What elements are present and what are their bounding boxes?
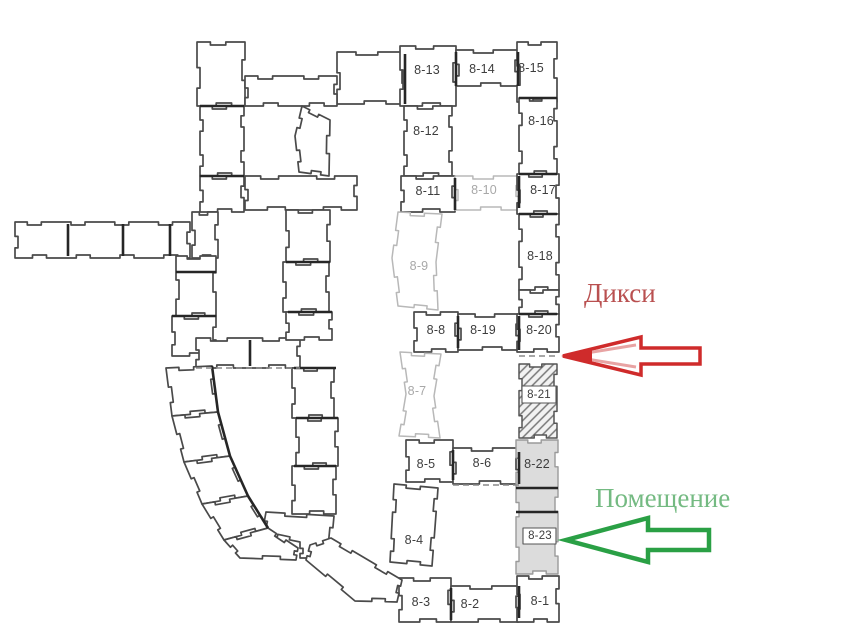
room-label-8-2: 8-2 <box>461 597 480 611</box>
plan-wall-shape <box>166 366 218 416</box>
plan-wall-shape <box>295 106 330 176</box>
room-label-8-21: 8-21 <box>527 389 551 401</box>
room-label-8-19: 8-19 <box>470 323 496 337</box>
room-label-8-14: 8-14 <box>469 62 495 76</box>
room-label-8-10: 8-10 <box>471 183 497 197</box>
room-label-8-3: 8-3 <box>412 595 431 609</box>
floor-plan-drawing: Дикси Помещение <box>0 0 847 633</box>
red-arrow-tip <box>561 349 592 364</box>
room-label-8-9: 8-9 <box>410 259 429 273</box>
plan-wall-shape <box>245 76 337 106</box>
green-arrow-outline <box>566 518 709 562</box>
room-label-8-16: 8-16 <box>528 114 554 128</box>
floor-plan-canvas: Дикси Помещение 8-13 8-14 8-15 8-12 8-16… <box>0 0 847 633</box>
room-label-8-6: 8-6 <box>473 456 492 470</box>
plan-wall-shape <box>15 222 190 258</box>
plan-wall-shape <box>292 368 334 418</box>
plan-wall-shape <box>337 52 405 104</box>
plan-wall-shape <box>286 312 332 340</box>
room-label-8-17: 8-17 <box>530 183 556 197</box>
room-label-8-7: 8-7 <box>408 384 427 398</box>
room-label-8-18: 8-18 <box>527 249 553 263</box>
plan-wall-shape <box>306 538 402 602</box>
room-label-8-13: 8-13 <box>414 63 440 77</box>
room-label-8-23: 8-23 <box>528 530 552 542</box>
plan-wall-shape <box>292 466 336 514</box>
room-label-8-5: 8-5 <box>417 457 436 471</box>
plan-wall-shape <box>176 256 216 316</box>
room-label-8-20: 8-20 <box>526 323 552 337</box>
plan-wall-shape <box>245 176 357 210</box>
room-label-8-15: 8-15 <box>518 61 544 75</box>
plan-wall-shape <box>200 176 244 212</box>
room-label-8-8: 8-8 <box>427 323 446 337</box>
plan-wall-shape <box>390 484 438 566</box>
room-label-8-11: 8-11 <box>416 184 441 198</box>
plan-wall-shape <box>519 290 559 314</box>
plan-wall-shape <box>296 418 338 466</box>
plan-wall-shape <box>519 98 557 174</box>
room-label-8-4: 8-4 <box>405 533 424 547</box>
red-arrow-icon <box>561 337 700 375</box>
room-label-8-12: 8-12 <box>413 124 439 138</box>
premises-label: Помещение <box>595 483 730 513</box>
plan-wall-shape <box>283 262 329 312</box>
plan-wall-shape <box>404 106 452 176</box>
dixie-label: Дикси <box>584 278 656 308</box>
plan-wall-shape <box>197 42 245 106</box>
plan-wall-shape <box>192 212 218 258</box>
green-arrow-icon <box>566 518 709 562</box>
plan-wall-shape <box>184 456 248 504</box>
room-label-8-22: 8-22 <box>524 457 550 471</box>
plan-wall-shape <box>200 106 244 176</box>
room-label-8-1: 8-1 <box>531 594 550 608</box>
plan-wall-shape <box>286 210 330 262</box>
plan-wall-shape <box>196 338 300 368</box>
